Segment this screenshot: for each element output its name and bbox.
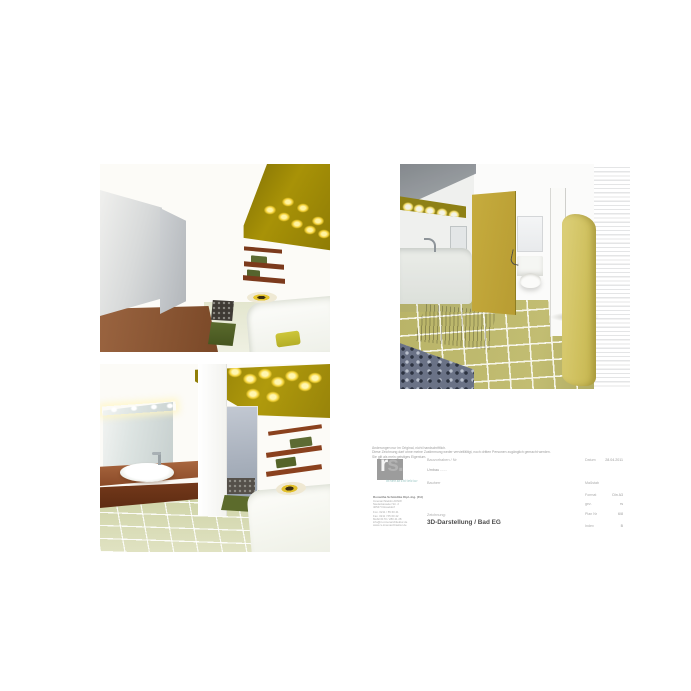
drawing-label: Zeichnung:	[427, 513, 446, 517]
project-value: Umbau ......	[427, 468, 447, 472]
meta-row-gez: gez. rs	[585, 502, 623, 507]
meta-label: Format	[585, 493, 596, 497]
meta-row-plannr: Plan Nr 6/8	[585, 512, 623, 517]
meta-row-datum: Datum 28.04.2011	[585, 458, 623, 463]
render-bath-view-1	[100, 164, 330, 352]
contact-line: www.rs-innenarchitektur.de	[373, 524, 428, 527]
logo-letter-s: s.	[387, 453, 403, 476]
render-bath-view-2	[100, 364, 330, 552]
meta-value: 6/8	[618, 512, 623, 516]
meta-label: Maßstab	[585, 481, 599, 485]
shower-mosaic-floor	[227, 478, 255, 494]
glass-pane-tint	[400, 164, 474, 312]
client-label: Bauherr	[427, 481, 441, 485]
fruit-plate	[247, 292, 277, 303]
drawing-title: 3D-Darstellung / Bad EG	[427, 519, 501, 526]
slatted-wall	[594, 164, 630, 389]
project-label: Bauvorhaben / Nr	[427, 458, 457, 462]
meta-row-index: Index B	[585, 524, 623, 529]
drawing-sheet: Änderungen nur im Original, nicht handsc…	[0, 0, 691, 691]
meta-value: 28.04.2011	[605, 458, 623, 462]
meta-label: gez.	[585, 502, 592, 506]
faucet-spout	[152, 452, 161, 455]
washbasin	[120, 463, 174, 482]
yellow-partition-panel	[472, 191, 516, 315]
wall-shelf	[266, 464, 322, 477]
logo-rs: rs.	[380, 454, 403, 475]
wall-shelf	[243, 275, 285, 284]
meta-row-format: Format Din A3	[585, 493, 623, 498]
window	[517, 216, 543, 252]
brown-floor	[100, 306, 218, 352]
green-rug	[208, 322, 236, 346]
mosaic-rug	[211, 300, 234, 321]
wall-shelf	[244, 261, 284, 269]
meta-value: Din A3	[612, 493, 623, 497]
towel-radiator	[562, 214, 596, 386]
toilet-bowl	[520, 273, 541, 288]
meta-label: Plan Nr	[585, 512, 597, 516]
wall-shelf	[268, 424, 322, 435]
render-bath-view-3	[400, 164, 630, 389]
meta-row-massstab: Maßstab	[585, 481, 623, 486]
meta-value: rs	[620, 502, 623, 506]
architect-address-block: Roswitha Schmidtke Dipl.-Ing. (FH) Innen…	[373, 496, 428, 527]
towel	[275, 457, 296, 469]
logo-subtitle: innenarchitektur	[386, 479, 418, 483]
meta-label: Datum	[585, 458, 596, 462]
meta-value: B	[621, 524, 623, 528]
partition-wall	[198, 364, 227, 516]
wardrobe-panel	[100, 190, 162, 316]
meta-label: Index	[585, 524, 594, 528]
ceiling-light-panel	[240, 164, 330, 252]
wardrobe-panel-2	[160, 208, 186, 314]
wall-shelf	[244, 246, 282, 253]
